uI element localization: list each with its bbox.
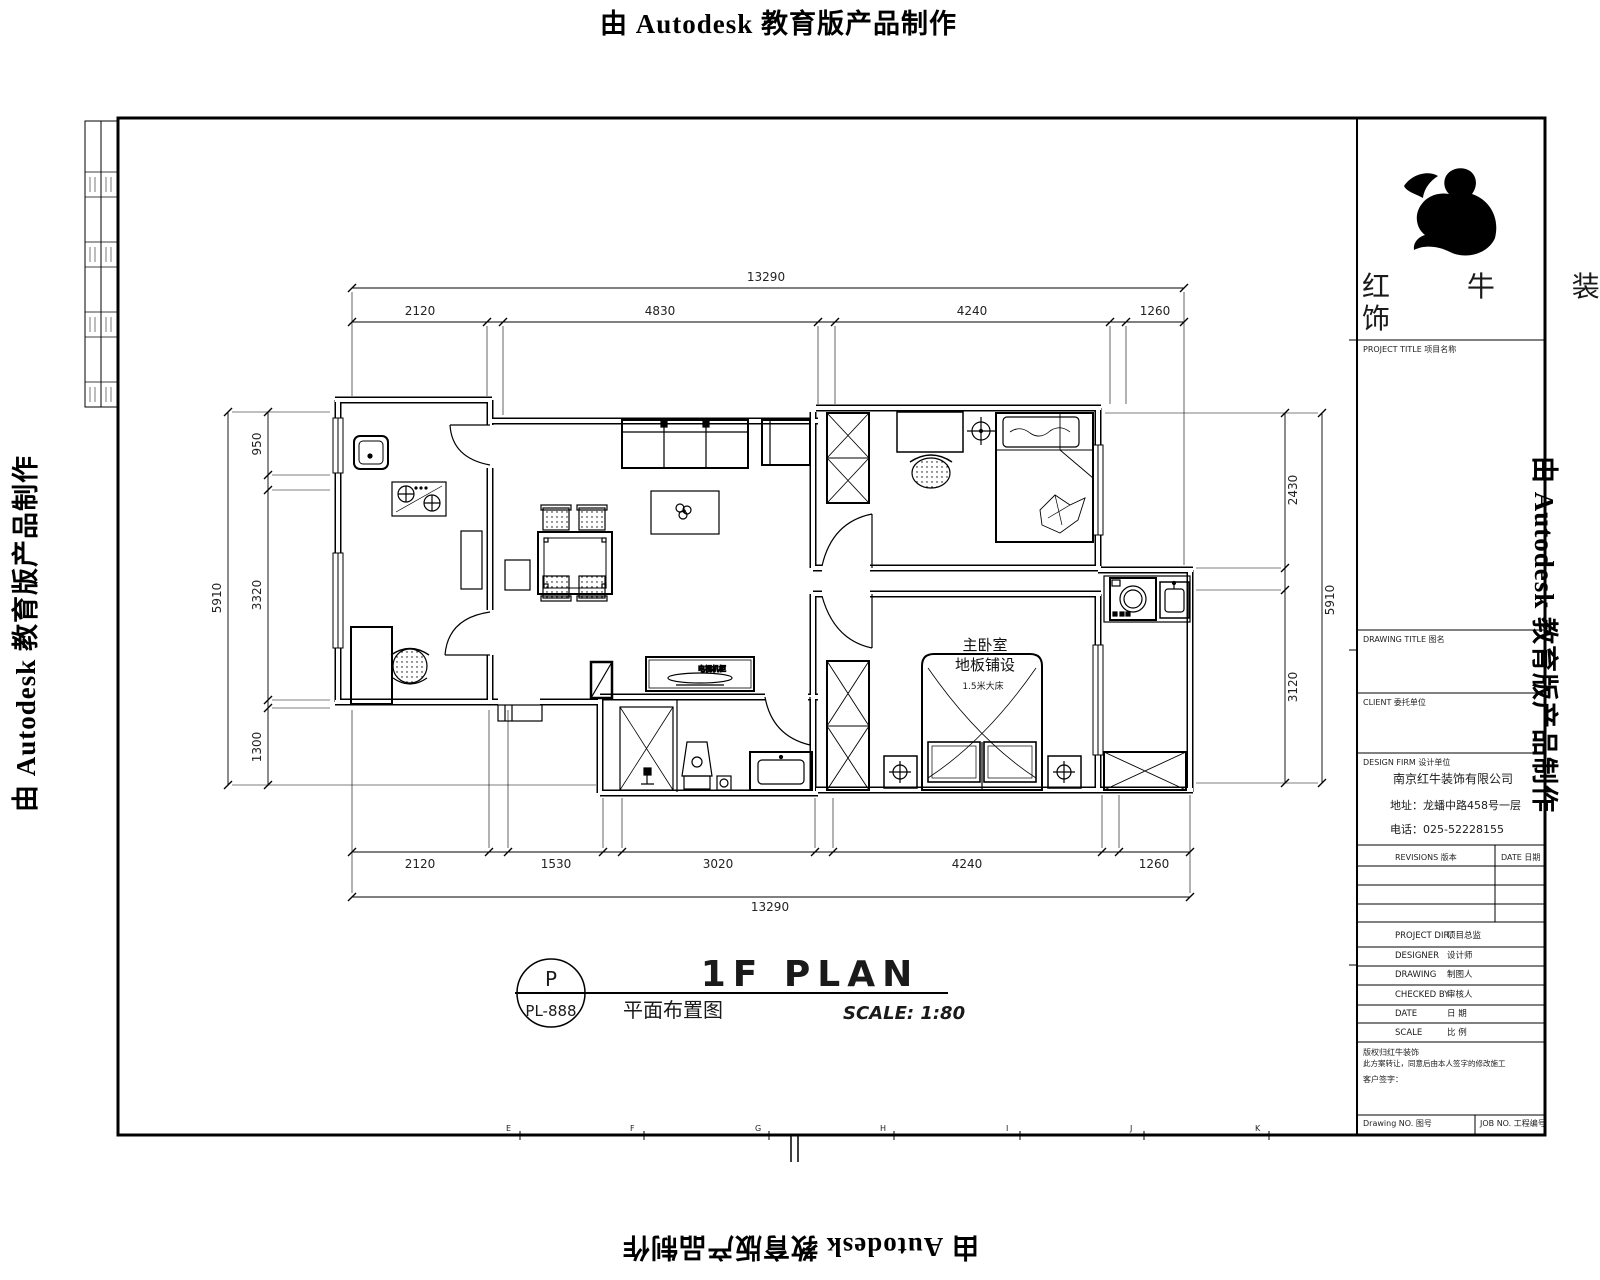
svg-text:13290: 13290	[751, 900, 789, 914]
svg-text:950: 950	[250, 433, 264, 456]
window-kitchen	[333, 418, 343, 473]
cad-drawing: E F G H I J K	[0, 0, 1600, 1280]
job-no-label: JOB NO. 工程编号	[1479, 1118, 1546, 1128]
window-study	[333, 553, 343, 648]
svg-text:2120: 2120	[405, 304, 436, 318]
room-bed: 1.5米大床	[962, 680, 1003, 692]
nightstand-right	[1048, 756, 1081, 788]
nightstand-left	[884, 756, 917, 788]
svg-text:日 期: 日 期	[1447, 1009, 1467, 1019]
study-cabinet	[351, 627, 392, 704]
ceiling-light-bedroom2	[967, 417, 995, 445]
svg-text:审核人: 审核人	[1447, 989, 1473, 1000]
svg-text:J: J	[1129, 1124, 1132, 1133]
svg-text:3020: 3020	[703, 857, 734, 871]
bedroom2-bed	[996, 413, 1093, 542]
svg-text:5910: 5910	[210, 583, 224, 614]
brand-name-line2: 饰	[1362, 302, 1390, 335]
svg-text:4240: 4240	[957, 304, 988, 318]
bedroom2-desk	[897, 412, 963, 452]
title-block: 红 牛 装 饰 PROJECT TITLE 项目名称 DRAWING TITLE…	[1357, 168, 1600, 1135]
revisions-label: REVISIONS 版本	[1395, 852, 1457, 862]
project-title-label: PROJECT TITLE 项目名称	[1363, 344, 1456, 354]
window-master	[1093, 645, 1103, 755]
dim-left	[224, 408, 596, 789]
tv-cabinet	[646, 657, 754, 691]
plan-title-cn: 平面布置图	[623, 998, 723, 1022]
tv-cabinet-label: 电视机柜	[698, 664, 726, 673]
svg-text:DATE: DATE	[1395, 1009, 1417, 1019]
svg-text:4830: 4830	[645, 304, 676, 318]
room-floor: 地板铺设	[955, 656, 1015, 674]
plan-title: 1F PLAN	[701, 954, 920, 995]
plan-scale: SCALE: 1:80	[843, 1003, 965, 1024]
client-label: CLIENT 委托单位	[1363, 697, 1426, 707]
disclaimer-line2: 此方案转让，同意后由本人签字的修改施工	[1363, 1058, 1506, 1068]
svg-text:1260: 1260	[1140, 304, 1171, 318]
dim-right	[1105, 409, 1326, 787]
svg-text:1260: 1260	[1139, 857, 1170, 871]
svg-text:3120: 3120	[1286, 672, 1300, 703]
sheet-border	[118, 118, 1545, 1162]
svg-text:4240: 4240	[952, 857, 983, 871]
svg-text:PROJECT DIR.: PROJECT DIR.	[1395, 931, 1452, 941]
master-bed	[922, 654, 1042, 790]
side-cabinet	[762, 420, 810, 465]
company-name: 南京红牛装饰有限公司	[1393, 771, 1513, 786]
plant	[676, 504, 691, 519]
drawing-title-label: DRAWING TITLE 图名	[1363, 634, 1445, 644]
svg-text:G: G	[755, 1124, 761, 1133]
svg-text:2120: 2120	[405, 857, 436, 871]
rug	[651, 491, 719, 534]
room-labels: 主卧室 地板铺设 1.5米大床	[955, 636, 1015, 692]
disclaimer-line3: 客户签字：	[1363, 1074, 1403, 1084]
shower	[620, 707, 673, 790]
sofa	[622, 420, 748, 468]
svg-text:制图人: 制图人	[1447, 969, 1473, 980]
master-door	[822, 594, 872, 648]
company-phone: 电话：025-52228155	[1390, 823, 1504, 836]
svg-text:1300: 1300	[250, 732, 264, 763]
study-chair	[391, 649, 429, 685]
border-attribute-table	[85, 121, 118, 407]
entry-step	[498, 705, 542, 721]
design-firm-label: DESIGN FIRM 设计单位	[1363, 757, 1450, 767]
svg-text:1530: 1530	[541, 857, 572, 871]
room-name: 主卧室	[962, 636, 1007, 654]
bedroom2-door	[822, 514, 872, 568]
svg-text:E: E	[506, 1124, 511, 1133]
company-address: 地址：龙蟠中路458号一层	[1390, 798, 1521, 812]
bedroom2-wardrobe	[827, 413, 869, 503]
washer	[1104, 576, 1190, 622]
svg-text:比 例: 比 例	[1447, 1027, 1467, 1038]
brand-logo	[1404, 168, 1496, 255]
svg-text:2430: 2430	[1286, 475, 1300, 506]
svg-text:CHECKED BY: CHECKED BY	[1395, 990, 1450, 1000]
kitchen-door	[450, 425, 490, 465]
shoe-cabinet	[591, 662, 612, 698]
toilet	[682, 742, 712, 789]
tag-letter: P	[545, 967, 557, 991]
master-wardrobe	[827, 661, 869, 790]
bedroom2-chair	[910, 455, 952, 488]
svg-text:K: K	[1255, 1124, 1261, 1133]
personnel-rows: PROJECT DIR.项目总监 DESIGNER设计师 DRAWING制图人 …	[1395, 930, 1482, 1038]
svg-text:3320: 3320	[250, 580, 264, 611]
drawing-sheet: 由 Autodesk 教育版产品制作 由 Autodesk 教育版产品制作 由 …	[0, 0, 1600, 1280]
svg-text:项目总监: 项目总监	[1447, 930, 1482, 941]
brand-name-line1: 红 牛 装	[1362, 270, 1600, 303]
bathroom-door	[765, 697, 810, 745]
window-bedroom2	[1093, 445, 1103, 535]
balcony-wardrobe	[1104, 752, 1186, 790]
svg-text:H: H	[880, 1124, 886, 1133]
study-door	[445, 612, 490, 655]
svg-text:设计师: 设计师	[1447, 950, 1473, 961]
disclaimer-line1: 版权归红牛装饰	[1363, 1047, 1419, 1057]
wall-column	[505, 560, 530, 590]
svg-text:DRAWING: DRAWING	[1395, 970, 1436, 980]
drawing-no-label: Drawing NO. 图号	[1363, 1119, 1432, 1128]
svg-text:F: F	[630, 1124, 635, 1133]
plan-furniture: 电视机柜	[351, 412, 1190, 792]
study-desk	[461, 531, 482, 589]
svg-text:13290: 13290	[747, 270, 785, 284]
floor-drain	[717, 776, 731, 790]
svg-text:DESIGNER: DESIGNER	[1395, 951, 1439, 961]
revisions-date-label: DATE 日期	[1501, 853, 1540, 862]
washbasin	[750, 752, 812, 790]
kitchen-sink	[354, 436, 388, 469]
tag-number: PL-888	[525, 1002, 576, 1020]
svg-text:SCALE: SCALE	[1395, 1028, 1422, 1038]
dimension-labels: 13290 2120 4830 4240 1260 2120 1530 3020…	[210, 270, 1337, 914]
dining-chairs	[541, 505, 607, 601]
dim-bottom	[348, 710, 1194, 901]
kitchen-stove	[392, 482, 446, 516]
grid-reference-letters: E F G H I J K	[506, 1124, 1269, 1140]
svg-text:I: I	[1006, 1124, 1008, 1133]
plan-walls	[335, 400, 1193, 793]
svg-text:5910: 5910	[1323, 585, 1337, 616]
utility-sink	[1160, 582, 1189, 619]
drawing-title-area: P PL-888 1F PLAN 平面布置图 SCALE: 1:80	[515, 954, 965, 1027]
